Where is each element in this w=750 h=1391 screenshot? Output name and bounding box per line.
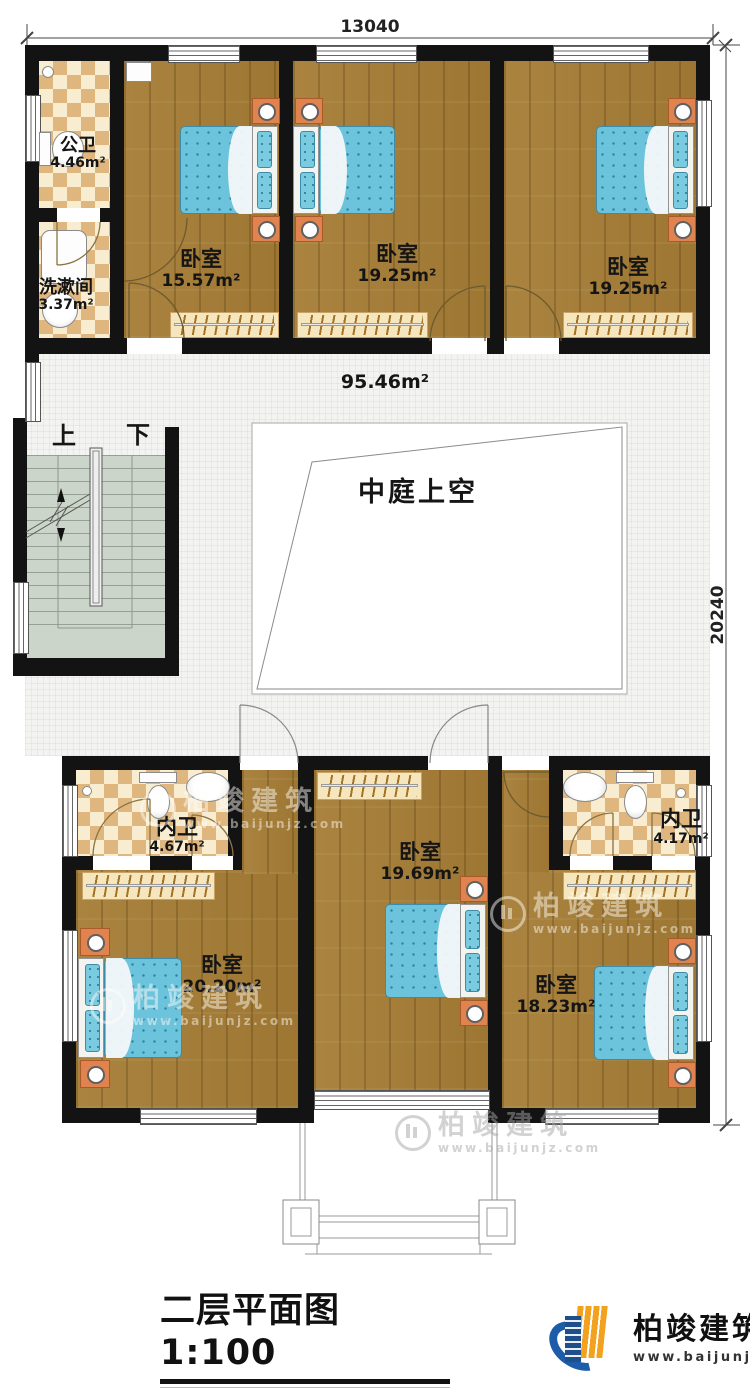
balcony-steps (305, 1238, 492, 1254)
washing-machine-icon (41, 230, 87, 284)
lamp-icon (258, 103, 276, 121)
stair-down-text: 下 (126, 422, 150, 449)
blanket (106, 958, 134, 1058)
window (62, 785, 78, 857)
lamp-icon (466, 1005, 484, 1023)
wall-right-lower (696, 770, 710, 785)
room-area: 19.25m² (358, 267, 437, 286)
room-label-bedroom-top-right: 卧室 19.25m² (589, 256, 668, 299)
room-area: 19.69m² (381, 865, 460, 884)
balcony-column-inner (487, 1208, 507, 1236)
bed (180, 98, 280, 242)
sink-icon (563, 772, 607, 802)
atrium-label: 中庭上空 (358, 478, 478, 508)
window (168, 45, 240, 63)
lamp-icon (674, 1067, 692, 1085)
room-label-bedroom-bottom-right: 卧室 18.23m² (517, 974, 596, 1017)
wall-bottom-outer (488, 1108, 545, 1123)
window (545, 1108, 659, 1125)
pillow (673, 131, 688, 168)
wardrobe (317, 772, 422, 800)
wall-left-lower (62, 855, 76, 930)
stair-up-text: 上 (52, 423, 76, 450)
room-name: 卧室 (517, 974, 596, 998)
balcony-column-inner (291, 1208, 311, 1236)
floor-drain-icon (42, 66, 54, 78)
balcony-rail (300, 1123, 497, 1210)
wall-bottom-outer (62, 1108, 140, 1123)
toilet-tank (616, 772, 654, 783)
room-name: 卧室 (358, 243, 437, 267)
wall-b4-b5 (298, 770, 314, 1123)
wall-b2-b3 (490, 61, 504, 354)
wardrobe (170, 312, 279, 338)
wardrobe-rod (301, 323, 424, 326)
room-name: 洗漱间 (38, 278, 93, 298)
wardrobe-rod (174, 323, 275, 326)
floor-plan: 13040 20240 公卫 4.46m² 洗漱间 3.37m² 卧室 15.5… (0, 0, 750, 1391)
dimension-height: 20240 (708, 585, 728, 644)
wall-stair-left (13, 418, 27, 582)
wall-stair-bottom (13, 658, 179, 676)
hallway-area-label: 95.46m² (341, 372, 429, 393)
nightstand (252, 98, 280, 124)
room-name: 卧室 (589, 256, 668, 280)
room-label-bedroom-bottom-middle: 卧室 19.69m² (381, 841, 460, 884)
wall-topband-bottom (559, 338, 710, 354)
window (696, 100, 712, 207)
room-area: 4.46m² (50, 156, 105, 172)
wall-bath-column (110, 61, 124, 354)
nightstand (460, 1000, 488, 1026)
room-area: 18.23m² (517, 998, 596, 1017)
floor-drain-icon (676, 788, 686, 798)
logo-building-blue (565, 1316, 581, 1362)
room-name: 卧室 (183, 954, 262, 978)
lamp-icon (674, 943, 692, 961)
lamp-icon (258, 221, 276, 239)
title-block: 二层平面图1:100 本层建筑面积：198.12m² 层高：3.3m (160, 1282, 450, 1391)
wall-left-lower (62, 770, 76, 785)
nightstand (295, 216, 323, 242)
lamp-icon (87, 1066, 105, 1084)
lamp-icon (301, 103, 319, 121)
wall-ensuite-left-right (228, 770, 242, 856)
blanket (321, 126, 347, 214)
nightstand (668, 216, 696, 242)
toilet-tank (39, 132, 51, 166)
wall-ensuite-right-bottom (549, 856, 570, 870)
room-label-bedroom-bottom-left: 卧室 20.20m² (183, 954, 262, 997)
window (13, 582, 29, 654)
room-area: 20.20m² (183, 978, 262, 997)
dimension-width: 13040 (340, 17, 399, 37)
pillow (465, 910, 480, 949)
pillow (257, 172, 272, 209)
wall-b5-b6 (488, 770, 502, 1123)
company-name: 柏竣建筑 (633, 1313, 750, 1346)
wall-bottomband-top (488, 756, 502, 770)
company-logo-icon (545, 1298, 623, 1380)
company-website: www.baijunjz.com (633, 1350, 750, 1365)
room-label-public-bath: 公卫 4.46m² (50, 136, 105, 172)
bed (385, 876, 488, 1026)
bed (293, 98, 395, 242)
room-area: 4.67m² (149, 840, 204, 856)
nightstand (80, 928, 110, 956)
plan-title: 二层平面图1:100 (160, 1282, 450, 1373)
wardrobe-rod (321, 784, 418, 787)
toilet-icon (147, 785, 170, 819)
lamp-icon (87, 934, 105, 952)
room-name: 卧室 (381, 841, 460, 865)
wall-ensuite-right-left (549, 770, 563, 856)
wall-bath-divider (100, 208, 110, 222)
wall-topband-bottom (182, 338, 432, 354)
wardrobe (563, 312, 693, 338)
nightstand (668, 1062, 696, 1088)
sink-icon (186, 772, 230, 802)
lamp-icon (674, 221, 692, 239)
room-name: 内卫 (653, 808, 708, 832)
bed (76, 928, 182, 1088)
balcony-rail (303, 1216, 495, 1222)
room-label-washroom: 洗漱间 3.37m² (38, 278, 93, 314)
pillow (257, 131, 272, 168)
bed (594, 938, 696, 1088)
door-leaf (126, 62, 152, 82)
room-name: 内卫 (149, 816, 204, 840)
pillow (673, 1015, 688, 1054)
stair-landing (27, 625, 165, 658)
wall-bottom-outer (255, 1108, 314, 1123)
room-area: 19.25m² (589, 280, 668, 299)
wall-bottom-outer (657, 1108, 710, 1123)
pillow (85, 964, 100, 1006)
wall-right-lower (696, 855, 710, 935)
company-logo: 柏竣建筑 www.baijunjz.com (545, 1298, 750, 1380)
pillow (300, 172, 315, 209)
title-underline (160, 1379, 450, 1384)
wall-ensuite-left-bottom (233, 856, 242, 870)
lamp-icon (301, 221, 319, 239)
window (25, 362, 41, 422)
floor-drain-icon (82, 786, 92, 796)
pillow (465, 953, 480, 992)
wall-stair-right (165, 427, 179, 676)
wall-bottomband-top (549, 756, 710, 770)
wardrobe (563, 872, 696, 900)
wall-left-mid (25, 354, 39, 362)
wardrobe-rod (567, 323, 689, 326)
bedroom-bottom-right-entry (502, 770, 549, 874)
wall-ensuite-left-bottom (76, 856, 93, 870)
blanket (228, 126, 254, 214)
room-area: 95.46m² (341, 372, 429, 393)
room-label-ensuite-right: 内卫 4.17m² (653, 808, 708, 847)
stair-up-label: 上 (52, 423, 76, 450)
stair-steps (27, 455, 165, 625)
room-area: 3.37m² (38, 298, 93, 314)
pillow (300, 131, 315, 168)
window (316, 45, 417, 63)
window (62, 930, 78, 1042)
watermark-logo-icon (395, 1115, 431, 1151)
toilet-icon (624, 785, 647, 819)
wardrobe (297, 312, 428, 338)
wardrobe-rod (567, 884, 692, 887)
room-name: 公卫 (50, 136, 105, 156)
room-area: 15.57m² (162, 272, 241, 291)
room-label-bedroom-top-left: 卧室 15.57m² (162, 248, 241, 291)
window (696, 935, 712, 1042)
wall-topband-bottom (487, 338, 504, 354)
balcony-column (479, 1200, 515, 1244)
wall-b1-b2 (279, 61, 293, 354)
wall-bottomband-top (298, 756, 428, 770)
wall-ensuite-right-bottom (613, 856, 652, 870)
nightstand (668, 938, 696, 964)
blanket (644, 126, 670, 214)
lamp-icon (674, 103, 692, 121)
nightstand (80, 1060, 110, 1088)
watermark-url: www.baijunjz.com (438, 1142, 601, 1154)
pillow (85, 1010, 100, 1052)
title-underline-thin (160, 1387, 450, 1388)
pillow (673, 972, 688, 1011)
room-label-bedroom-top-middle: 卧室 19.25m² (358, 243, 437, 286)
window (553, 45, 649, 63)
bedroom-bottom-left-entry (242, 770, 298, 874)
nightstand (252, 216, 280, 242)
wardrobe (82, 872, 215, 900)
lamp-icon (466, 881, 484, 899)
stair-down-label: 下 (126, 422, 150, 449)
balcony-column (283, 1200, 319, 1244)
wardrobe-rod (86, 884, 211, 887)
pillow (673, 172, 688, 209)
nightstand (668, 98, 696, 124)
toilet-tank (139, 772, 177, 783)
room-label-ensuite-left: 内卫 4.67m² (149, 816, 204, 855)
wall-bath-divider (39, 208, 57, 222)
window (140, 1108, 257, 1125)
room-name: 卧室 (162, 248, 241, 272)
nightstand (460, 876, 488, 902)
french-window (314, 1090, 490, 1110)
room-area: 4.17m² (653, 832, 708, 848)
room-name: 中庭上空 (358, 478, 478, 508)
wall-ensuite-left-bottom (150, 856, 192, 870)
nightstand (295, 98, 323, 124)
wall-topband-bottom (25, 338, 127, 354)
bed (596, 98, 696, 242)
wall-bottomband-top (62, 756, 240, 770)
